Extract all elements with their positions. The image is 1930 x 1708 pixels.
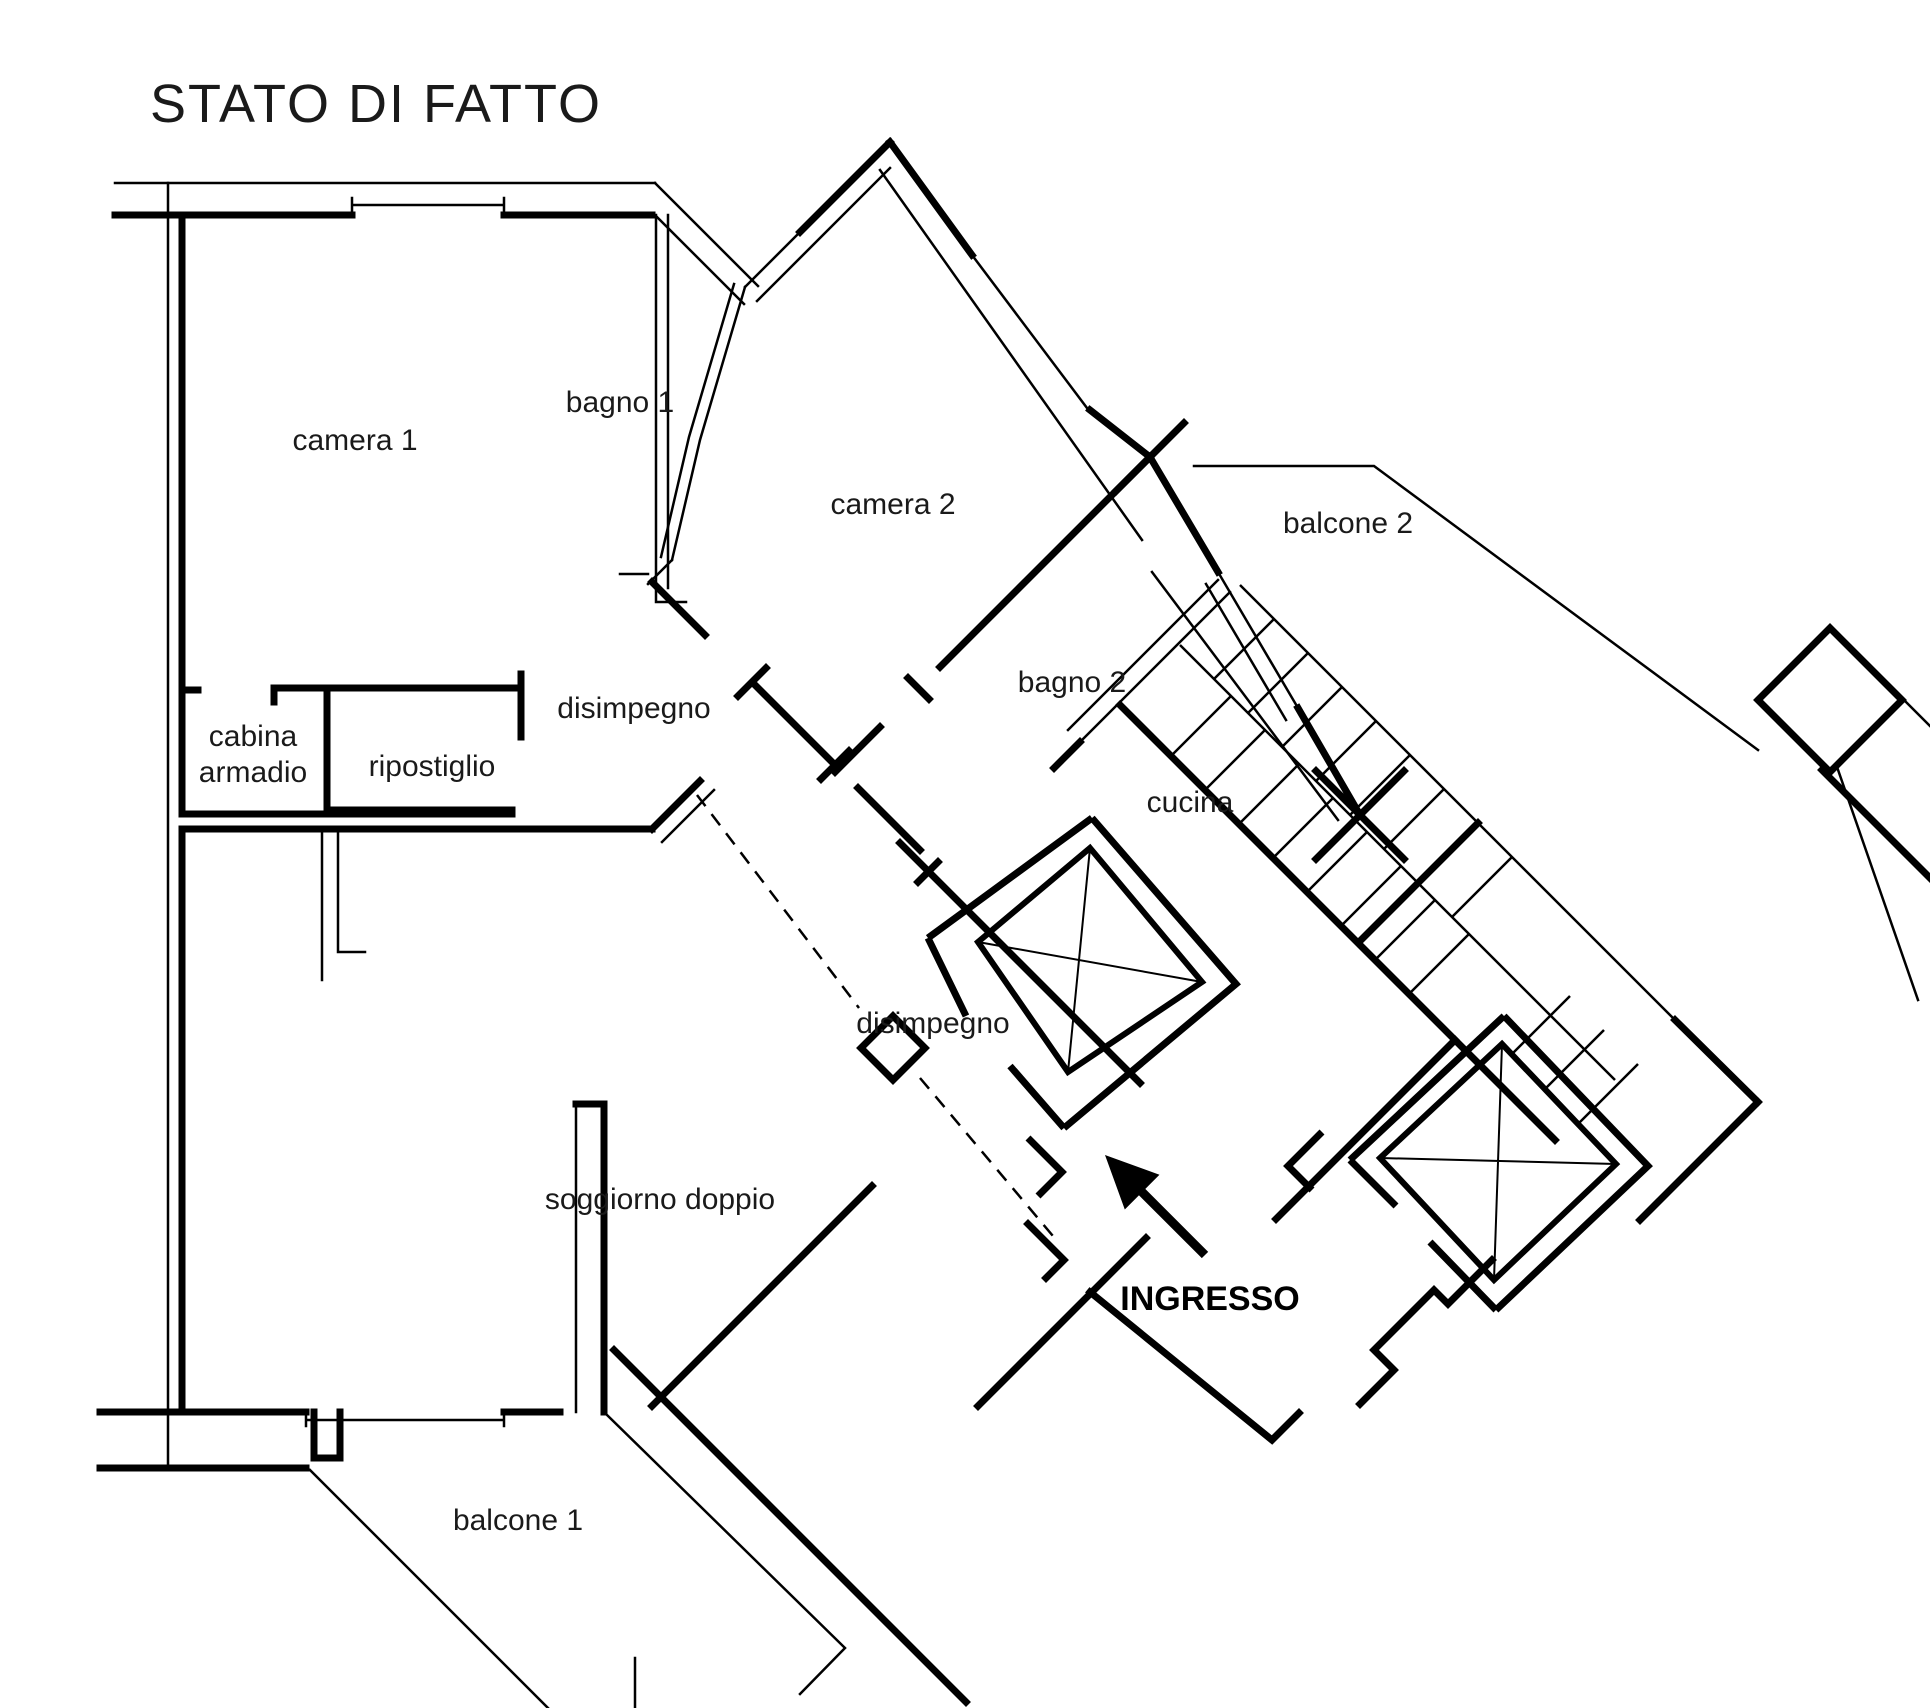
walls-thin (115, 168, 1930, 1708)
balcone2-railing (1194, 466, 1930, 1000)
bagno1-right-wall (620, 284, 745, 584)
room-label-cabina-line2: armadio (199, 756, 307, 789)
entrance-arrow-icon (1110, 1160, 1205, 1255)
balcone1-railing (310, 1414, 845, 1708)
top-wall-outer (115, 183, 655, 215)
nook-wall (322, 829, 365, 980)
walls-thick (100, 142, 1930, 1702)
stair-stringers (1180, 585, 1675, 1080)
staircase (1171, 585, 1675, 1124)
cucina-northwest-wall (1068, 580, 1230, 742)
cucina-door-jamb (1054, 742, 1080, 768)
page-title: STATO DI FATTO (150, 74, 602, 134)
stairwell-walls (1120, 705, 1930, 1220)
floor-plan-svg: STATO DI FATTO camera 1 bagno 1 camera 2… (0, 0, 1930, 1708)
top-diagonal-window (655, 183, 758, 304)
entrance-corridor-walls (614, 1186, 1492, 1702)
entrance-label: INGRESSO (1120, 1280, 1299, 1318)
room-label-ripostiglio: ripostiglio (369, 750, 496, 783)
room-label-bagno1: bagno 1 (566, 386, 674, 419)
balcone2-end-pier (1758, 628, 1902, 772)
camera2-upper-walls (800, 142, 1150, 457)
room-label-camera2: camera 2 (830, 488, 955, 521)
bagno2-window (1152, 572, 1338, 820)
room-label-soggiorno: soggiorno doppio (545, 1183, 775, 1216)
soggiorno-window (306, 1104, 576, 1426)
room-label-camera1: camera 1 (292, 424, 417, 457)
room-label-bagno2: bagno 2 (1018, 666, 1126, 699)
room-label-disimpegno-lower: disimpegno (856, 1007, 1009, 1040)
stair-treads (1171, 619, 1638, 1124)
room-label-disimpegno-upper: disimpegno (557, 692, 710, 725)
floor-plan-page: STATO DI FATTO camera 1 bagno 1 camera 2… (0, 0, 1930, 1708)
room-label-cabina-line1: cabina (209, 720, 298, 753)
soggiorno-bottom-wall (100, 1104, 604, 1468)
room-label-balcone2: balcone 2 (1283, 507, 1413, 540)
room-label-cucina: cucina (1147, 786, 1234, 819)
room-label-balcone1: balcone 1 (453, 1504, 583, 1537)
